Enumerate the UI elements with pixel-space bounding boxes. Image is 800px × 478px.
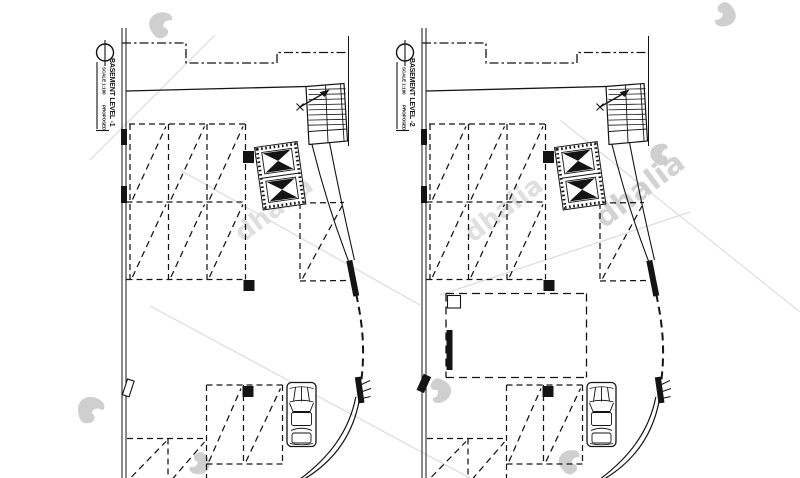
staircase-icon bbox=[297, 84, 348, 145]
floor-plans-svg: dhaliadhaliadhalia BASEMENT LEVEL -1 SCA… bbox=[0, 0, 800, 478]
parking-grid-bottom-left bbox=[427, 439, 507, 478]
watermark-logo-icon bbox=[187, 451, 211, 476]
watermark-logo-icon bbox=[147, 10, 177, 41]
columns bbox=[543, 151, 555, 397]
plan-scale-label: SCALE 1:100 bbox=[402, 67, 407, 95]
car-top-view-icon bbox=[287, 383, 316, 447]
plan-basement-level-2: BASEMENT LEVEL -2 SCALE 1:100 PROPOSED bbox=[396, 28, 671, 478]
site-wall-left bbox=[121, 28, 127, 478]
plan-basement-level-1: BASEMENT LEVEL -1 SCALE 1:100 PROPOSED bbox=[96, 28, 371, 478]
plan-status-label: PROPOSED bbox=[102, 105, 107, 131]
plan-geometry bbox=[121, 28, 371, 478]
plan-title: BASEMENT LEVEL -1 bbox=[108, 58, 115, 127]
building-top-edge bbox=[426, 87, 606, 92]
watermark-logo-icon bbox=[710, 0, 739, 29]
plan-geometry bbox=[417, 28, 671, 478]
building-top-edge bbox=[126, 87, 306, 92]
plan-title: BASEMENT LEVEL -2 bbox=[408, 58, 415, 127]
staircase-icon bbox=[597, 84, 648, 145]
elevator-core-icon bbox=[255, 142, 306, 210]
ramp-void-box bbox=[446, 294, 587, 378]
watermark-text: dhalia bbox=[459, 170, 549, 248]
door-leaf bbox=[122, 379, 134, 397]
columns bbox=[243, 151, 255, 397]
plan-scale-label: SCALE 1:100 bbox=[102, 67, 107, 95]
elevator-core-icon bbox=[555, 142, 606, 210]
watermark-logo-icon bbox=[76, 395, 106, 426]
door-leaf bbox=[417, 375, 430, 393]
site-wall-left bbox=[421, 28, 427, 478]
car-top-view-icon bbox=[587, 383, 616, 447]
watermark-layer: dhaliadhaliadhalia bbox=[76, 0, 800, 478]
title-block-basement-2: BASEMENT LEVEL -2 SCALE 1:100 PROPOSED bbox=[396, 40, 415, 131]
drawing-canvas: dhaliadhaliadhalia BASEMENT LEVEL -1 SCA… bbox=[0, 0, 800, 478]
parking-grid-top bbox=[427, 124, 546, 280]
title-block-basement-1: BASEMENT LEVEL -1 SCALE 1:100 PROPOSED bbox=[96, 40, 115, 131]
watermark-logo-icon bbox=[556, 447, 585, 477]
parking-grid-top bbox=[127, 124, 246, 280]
plan-status-label: PROPOSED bbox=[402, 105, 407, 131]
